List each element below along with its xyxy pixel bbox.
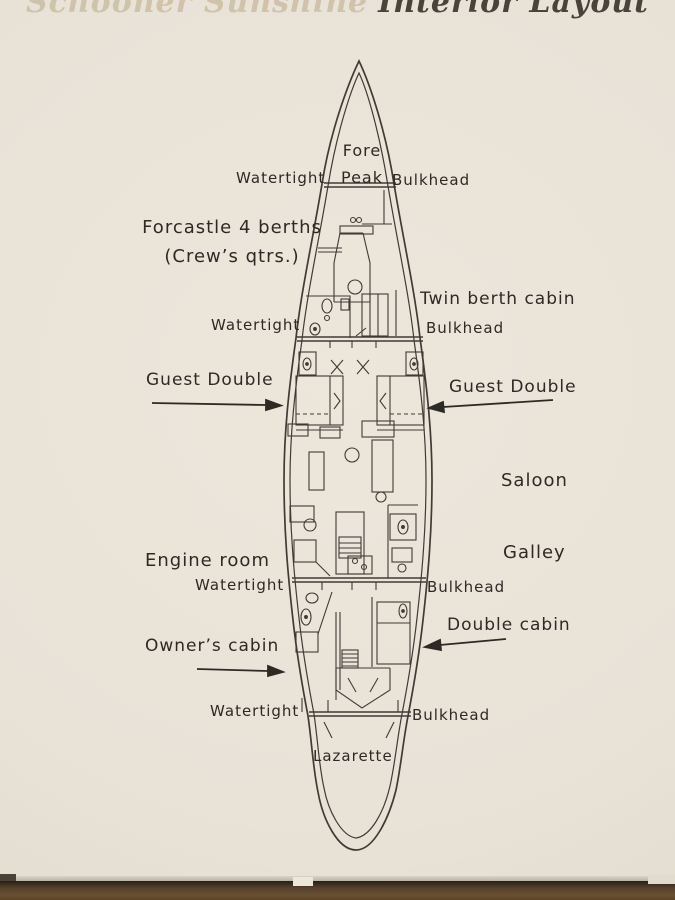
wooden-table-surface (0, 881, 675, 900)
engine-room-and-galley (290, 505, 418, 590)
lazarette-area (324, 722, 394, 738)
label-owners-cabin: Owner’s cabin (145, 636, 279, 656)
boat-layout-photo: Schooner SunshineInterior Layout (0, 0, 675, 900)
label-guest-double-port: Guest Double (146, 370, 274, 390)
label-bulkhead-fore: Bulkhead (392, 171, 470, 189)
label-galley: Galley (503, 542, 566, 563)
label-bulkhead-aft: Bulkhead (412, 706, 490, 724)
label-watertight-fore: Watertight (236, 169, 325, 187)
label-lazarette: Lazarette (313, 747, 393, 765)
label-bulkhead-mid-fore: Bulkhead (426, 319, 504, 337)
aft-cabins (296, 592, 410, 712)
label-watertight-aft: Watertight (210, 702, 299, 720)
label-forecastle-line2: (Crew’s qtrs.) (118, 242, 346, 271)
label-watertight-mid-aft: Watertight (195, 576, 284, 594)
label-guest-double-starboard: Guest Double (449, 377, 577, 397)
label-fore-peak-line1: Fore (322, 137, 402, 164)
label-saloon: Saloon (501, 470, 568, 491)
label-bulkhead-mid-aft: Bulkhead (427, 578, 505, 596)
label-double-cabin: Double cabin (447, 615, 571, 635)
label-watertight-mid-fore: Watertight (211, 316, 300, 334)
label-fore-peak: Fore Peak (322, 137, 402, 191)
label-forecastle-line1: Forcastle 4 berths (118, 213, 346, 242)
label-fore-peak-line2: Peak (322, 164, 402, 191)
label-engine-room: Engine room (145, 550, 270, 571)
label-forecastle: Forcastle 4 berths (Crew’s qtrs.) (118, 213, 346, 271)
label-twin-berth-cabin: Twin berth cabin (420, 289, 576, 309)
paper-corner-tab (293, 877, 313, 886)
saloon-area (288, 421, 394, 531)
paper-corner-tab-right (648, 875, 675, 884)
guest-double-cabins (296, 352, 424, 430)
heads-and-twin-berths (306, 290, 396, 348)
boat-floor-plan (0, 0, 675, 900)
